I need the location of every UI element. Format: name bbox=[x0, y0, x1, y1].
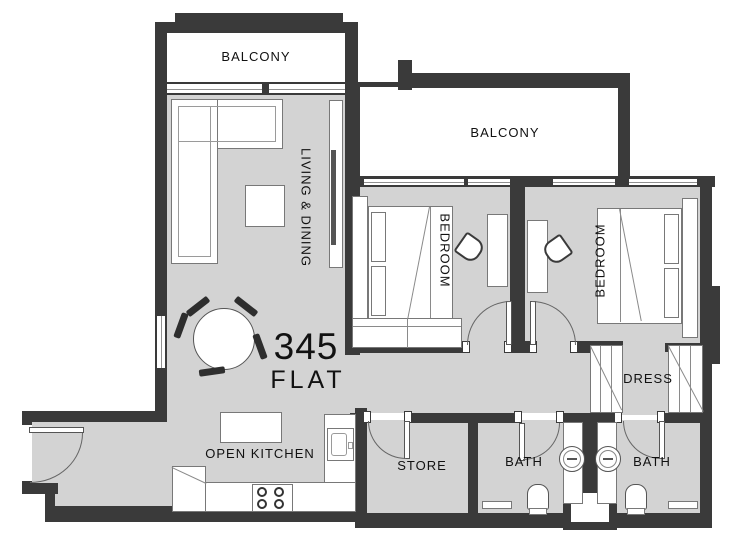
wall-segment bbox=[345, 22, 358, 90]
pillow bbox=[664, 268, 679, 318]
stove-burner bbox=[257, 499, 267, 509]
wall-segment bbox=[510, 183, 525, 353]
wall-segment bbox=[355, 408, 367, 520]
window bbox=[364, 178, 464, 186]
room-label-store: STORE bbox=[392, 458, 452, 473]
bed-headboard bbox=[682, 198, 698, 338]
pillow bbox=[371, 266, 386, 316]
basin-faucet bbox=[603, 458, 613, 460]
room-label-open-kitchen: OPEN KITCHEN bbox=[200, 446, 320, 461]
sofa-cushion-line bbox=[178, 106, 211, 257]
window bbox=[167, 82, 345, 95]
wall-segment bbox=[609, 513, 712, 528]
wall-segment bbox=[662, 413, 712, 423]
toilet-base bbox=[529, 508, 547, 515]
sink-faucet bbox=[348, 442, 353, 449]
stove-burner bbox=[274, 487, 284, 497]
wardrobe-line bbox=[611, 346, 612, 412]
pillow bbox=[664, 214, 679, 264]
wall-segment bbox=[45, 483, 55, 522]
flat-type-label: FLAT bbox=[262, 366, 354, 395]
balcony-railing bbox=[358, 82, 402, 87]
wall-segment bbox=[22, 411, 167, 422]
window-mullion bbox=[262, 82, 269, 95]
toilet bbox=[625, 484, 647, 510]
window bbox=[468, 178, 510, 186]
desk bbox=[527, 220, 548, 293]
door-jamb bbox=[514, 411, 522, 423]
wall-segment bbox=[468, 420, 478, 517]
wall-segment bbox=[408, 413, 522, 423]
wardrobe-line bbox=[690, 346, 691, 412]
room-label-dress: DRESS bbox=[618, 371, 678, 386]
wall-segment bbox=[618, 73, 630, 185]
flat-number: 345 bbox=[260, 326, 352, 368]
kitchen-corner-cabinet bbox=[172, 466, 206, 512]
wardrobe-line bbox=[600, 346, 601, 412]
room-label-bath-right: BATH bbox=[622, 454, 682, 469]
room-label-bedroom-right: BEDROOM bbox=[593, 206, 608, 316]
room-label-bath-left: BATH bbox=[494, 454, 554, 469]
stove-burner bbox=[274, 499, 284, 509]
toilet bbox=[527, 484, 549, 510]
bed-headboard bbox=[352, 196, 368, 336]
stove-burner bbox=[257, 487, 267, 497]
wardrobe-line bbox=[679, 346, 680, 412]
bench-back-line bbox=[353, 326, 461, 327]
pillow bbox=[371, 212, 386, 262]
room-label-bedroom-left: BEDROOM bbox=[438, 196, 453, 306]
bath-shelf bbox=[668, 501, 698, 509]
basin-faucet bbox=[567, 458, 577, 460]
room-label-balcony-right: BALCONY bbox=[445, 125, 565, 140]
blanket-line bbox=[620, 209, 621, 322]
floor-plan: BALCONY BALCONY LIVING & DINING BEDROOM … bbox=[0, 0, 735, 554]
toilet-base bbox=[627, 508, 645, 515]
window bbox=[629, 178, 697, 186]
room-label-balcony-top: BALCONY bbox=[196, 49, 316, 64]
window bbox=[553, 178, 615, 186]
bath-shelf bbox=[482, 501, 512, 509]
bench-divider bbox=[407, 318, 408, 348]
window bbox=[155, 316, 167, 368]
wall-segment bbox=[355, 513, 570, 528]
wall-segment bbox=[511, 341, 531, 353]
tv-icon bbox=[331, 150, 336, 245]
blanket-line bbox=[430, 207, 431, 320]
wall-segment bbox=[155, 22, 358, 33]
sink-basin bbox=[331, 433, 347, 456]
coffee-table bbox=[245, 185, 285, 227]
wall-segment bbox=[398, 73, 630, 88]
kitchen-island bbox=[220, 412, 282, 443]
dining-table bbox=[193, 308, 255, 370]
room-label-living-dining: LIVING & DINING bbox=[299, 128, 314, 288]
desk bbox=[487, 214, 508, 287]
wall-pilaster bbox=[705, 286, 720, 364]
wall-segment bbox=[175, 13, 343, 22]
